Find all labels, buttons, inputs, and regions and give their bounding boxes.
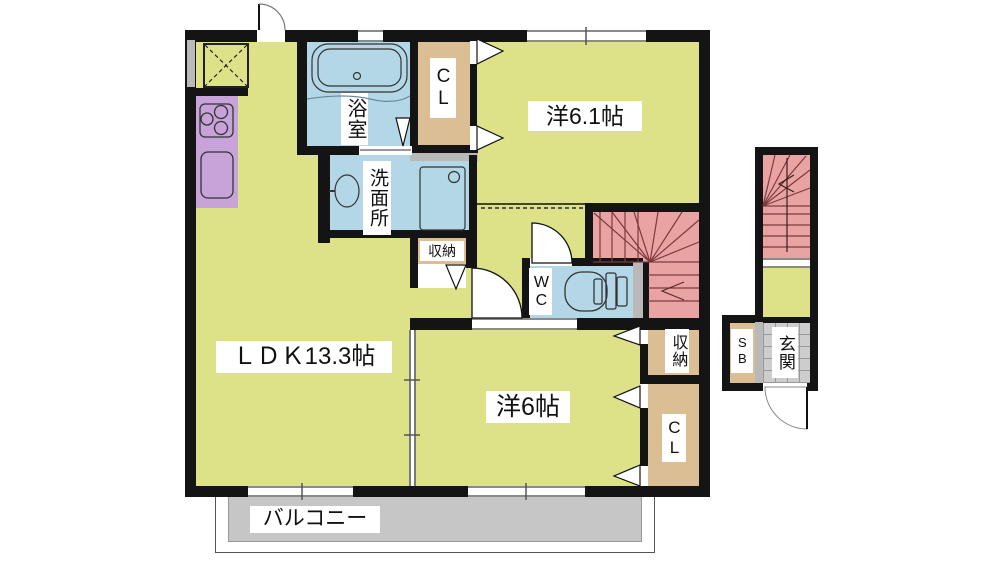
entrance-gray-strip [755, 322, 763, 383]
wall-right-closets-left [640, 344, 648, 376]
storage-right-door-gap [640, 330, 648, 344]
pipe-space [187, 40, 195, 87]
annex-wall-left [755, 147, 763, 322]
closet-right-door-gap [640, 384, 648, 408]
wall-left [185, 30, 196, 497]
wall-stairs-left [585, 203, 593, 262]
floor-plan-canvas: ＬＤＫ13.3帖 洋6.1帖 洋6帖 バルコニー 浴室 洗面所 WC CL CL… [0, 0, 1000, 562]
wall-bath-left [297, 41, 307, 155]
wall-top [383, 30, 527, 42]
annex-window [763, 258, 810, 268]
ldk-label: ＬＤＫ13.3帖 [216, 341, 392, 373]
bath-label: 浴室 [341, 93, 368, 145]
wall-wash-right [469, 155, 477, 238]
wall-storage-mid-left [410, 238, 418, 288]
closet-top-label: CL [430, 58, 456, 118]
closet-top-door-gap [470, 41, 477, 64]
wall-bottom [585, 486, 710, 497]
western-6-label: 洋6帖 [486, 391, 570, 423]
top-door-swing [259, 4, 285, 30]
closet-top-door-gap [470, 126, 477, 150]
shoebox-wall-left [722, 315, 730, 391]
bedroom-window [527, 30, 646, 42]
western6-sliding-door [472, 318, 577, 330]
storage-right-label: 収納 [665, 329, 689, 373]
annex-stairs [763, 155, 810, 258]
western6-window [468, 486, 585, 497]
balcony-door-window [248, 486, 353, 497]
shoe-box-label: SB [731, 329, 753, 373]
stairs-upper [593, 212, 699, 262]
entrance-step [755, 317, 810, 323]
wall-right [699, 30, 710, 497]
hatch-square [203, 43, 249, 88]
annex-wall-top [755, 147, 818, 155]
stairs-lower [648, 262, 699, 318]
wall-closet-top-right [470, 64, 477, 126]
wall-bottom [185, 486, 248, 497]
wall-corridor-bottom [577, 318, 710, 330]
wall-stairs-top [585, 203, 699, 212]
entrance-door-gap [763, 383, 807, 391]
western-6-1-label: 洋6.1帖 [528, 101, 642, 131]
wall-kitchen-top [196, 88, 248, 96]
kitchen-counter [196, 95, 238, 208]
wall-corridor-bottom [410, 318, 472, 330]
wall-bath-bottom [297, 146, 359, 155]
wall-storage-cl-divider [640, 375, 710, 384]
entrance-label: 玄関 [772, 327, 798, 378]
wc-gray-strip [633, 262, 643, 318]
wall-storage-mid-right [466, 238, 477, 268]
wc-label: WC [529, 268, 552, 315]
closet-right-door-gap [640, 466, 648, 486]
bath-window [358, 30, 383, 42]
balcony-label: バルコニー [250, 506, 380, 533]
wc-door-gap [530, 258, 572, 266]
wall-closet-top-bottom [410, 145, 478, 153]
room-washroom [330, 155, 469, 230]
doorway-gray-band [410, 153, 478, 161]
wall-bottom [353, 486, 468, 497]
bath-door-gap [359, 146, 412, 155]
closet-right-label: CL [662, 414, 686, 462]
annex-landing [763, 268, 810, 317]
storage-mid-opening [418, 264, 466, 288]
washroom-label: 洗面所 [363, 161, 391, 235]
wall-right-closets-left [640, 408, 648, 466]
wall-stairs-lower-left [643, 262, 649, 318]
wall-bath-right [410, 41, 418, 154]
wall-wash-bottom [318, 230, 470, 238]
top-door-gap [257, 30, 285, 42]
storage-mid-label: 収納 [420, 241, 464, 261]
annex-wall-right [810, 147, 818, 391]
annex-wall-bottom [807, 383, 818, 391]
ldk-partition [409, 330, 416, 486]
wall-top [285, 30, 358, 42]
entrance-door-swing [765, 387, 807, 429]
